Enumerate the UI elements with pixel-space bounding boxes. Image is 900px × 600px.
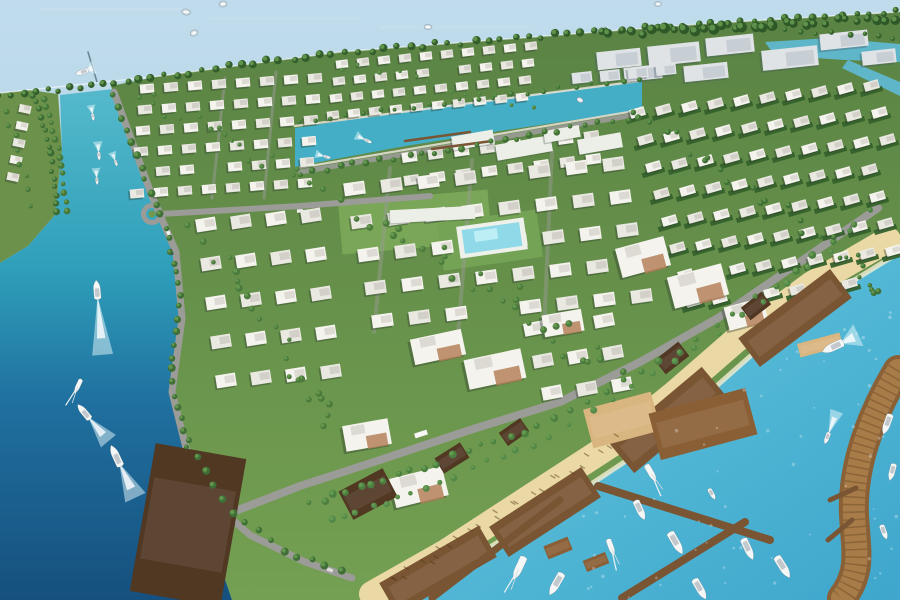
boat-tiny <box>424 24 432 30</box>
aerial-rendering: Aerial architectural rendering of a wate… <box>0 0 900 600</box>
boat-tiny <box>654 1 661 6</box>
scene-canvas <box>0 0 900 600</box>
